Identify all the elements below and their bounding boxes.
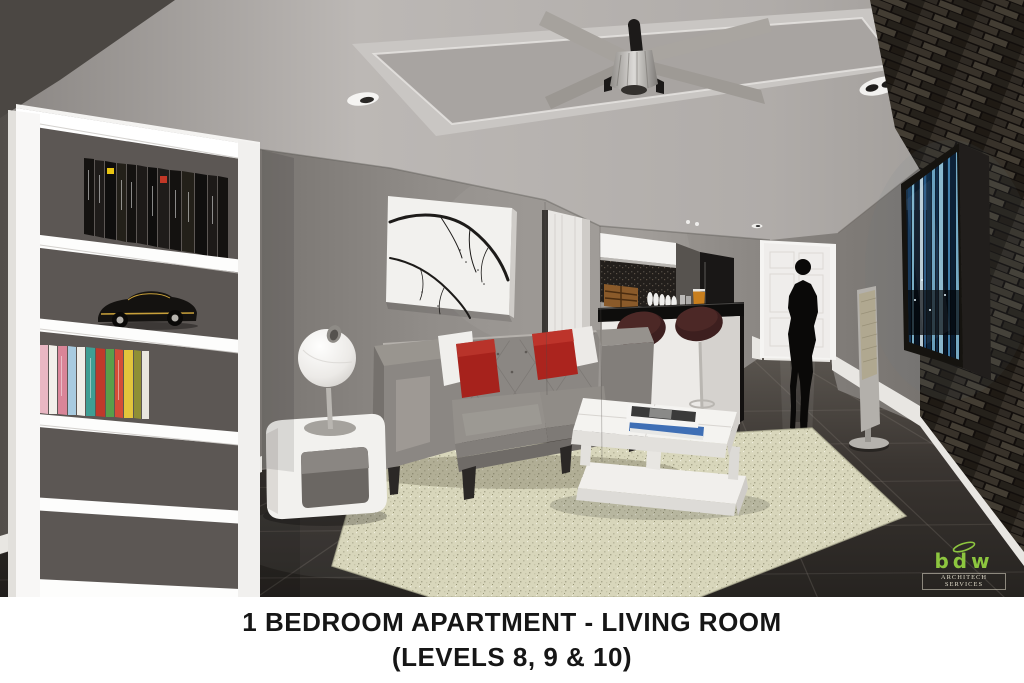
- caption-line1: 1 BEDROOM APARTMENT - LIVING ROOM: [0, 607, 1024, 638]
- caption: 1 BEDROOM APARTMENT - LIVING ROOM (LEVEL…: [0, 597, 1024, 683]
- wall-mounted-tv: [901, 143, 991, 380]
- tv-side-panel: [959, 143, 991, 380]
- logo-brand: bdw: [922, 551, 1006, 571]
- bookshelf: [8, 104, 294, 597]
- coffee-table: [550, 398, 770, 520]
- apartment-render-page: bdw ARCHITECH SERVICES 1 BEDROOM APARTME…: [0, 0, 1024, 683]
- logo-watermark: bdw ARCHITECH SERVICES: [922, 541, 1006, 590]
- branch-artwork: [386, 196, 517, 322]
- render-scene: [0, 0, 1024, 597]
- caption-line2: (LEVELS 8, 9 & 10): [0, 642, 1024, 673]
- logo-tagline: ARCHITECH SERVICES: [922, 573, 1006, 590]
- downlight-hallway: [752, 224, 763, 228]
- colorful-books-row: [30, 344, 149, 419]
